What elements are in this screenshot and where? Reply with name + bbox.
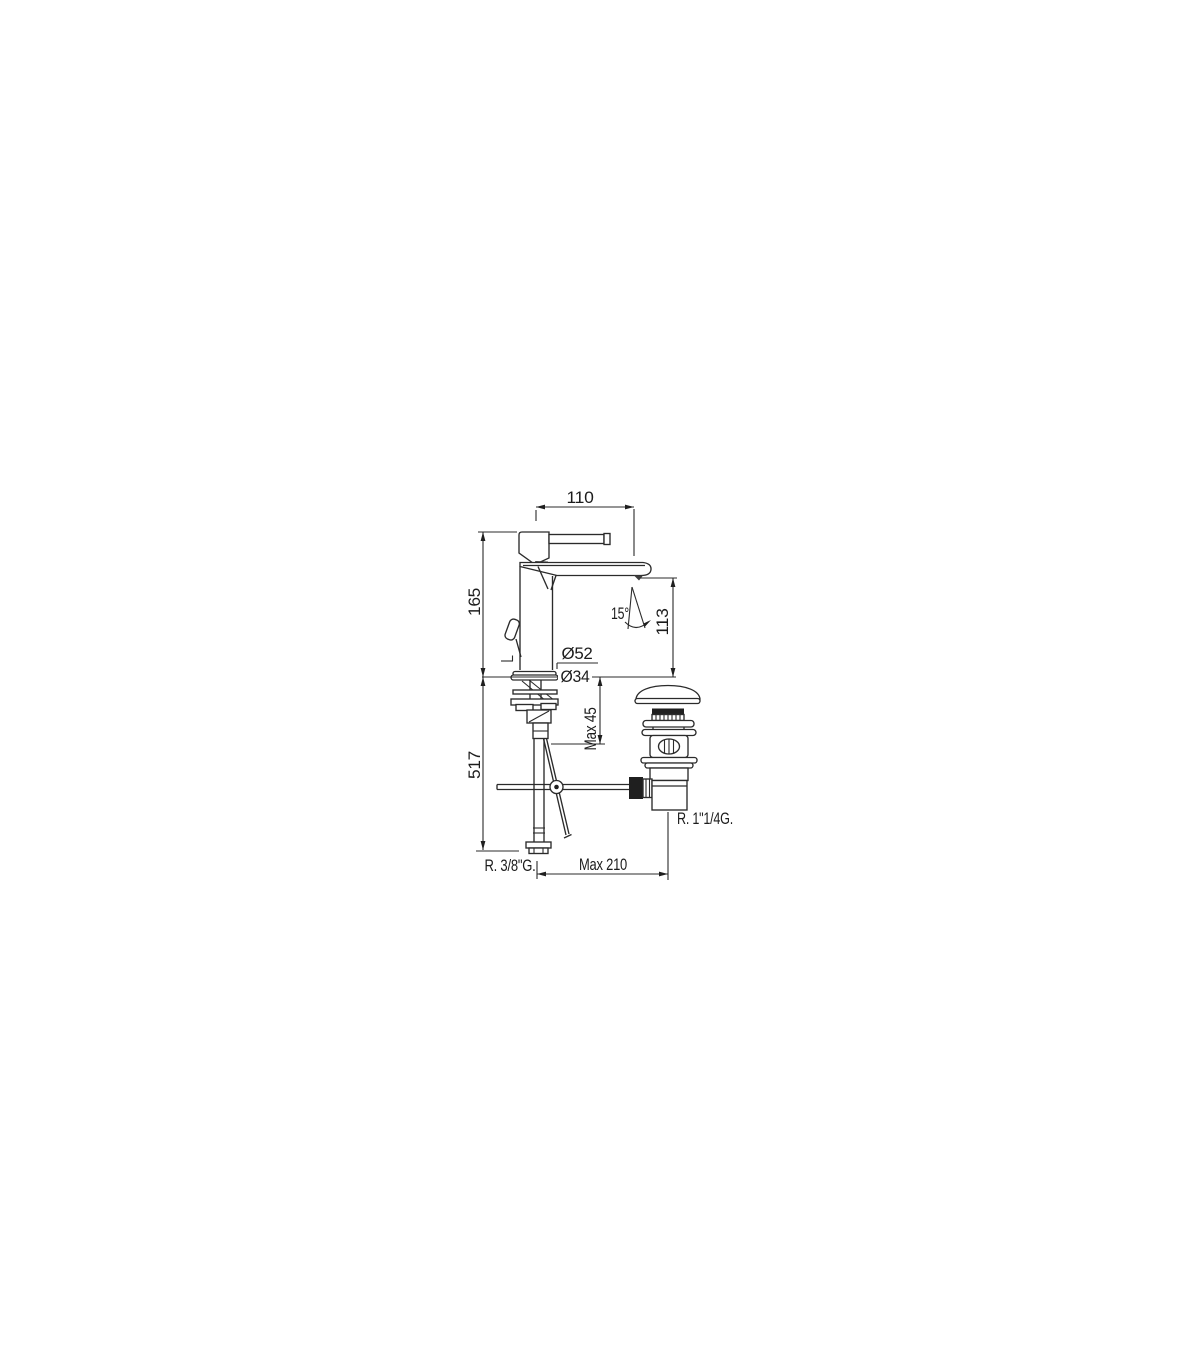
- waste-flange-top: [643, 721, 694, 728]
- dim-113-label: 113: [654, 608, 672, 635]
- dim-110-label: 110: [567, 489, 594, 507]
- waste-ribbed-neck: [652, 715, 684, 721]
- dim-165-label: 165: [466, 588, 484, 616]
- waste-flange-bottom: [641, 758, 697, 764]
- dimension-d34: Ø34: [558, 668, 592, 686]
- waste-inlet-nipple: [643, 779, 652, 798]
- faucet-base-collar: [511, 672, 558, 681]
- supply-hose-nut: [526, 842, 551, 848]
- faucet-body-cap: [519, 532, 549, 565]
- under-deck-mounting: [511, 680, 558, 739]
- product-drawing-page: 110 165 517 113 15° Ø52: [0, 0, 1200, 1372]
- faucet-handle-lever: [549, 534, 610, 545]
- dimension-110: 110: [536, 489, 634, 556]
- dimension-max45: Max 45: [551, 677, 605, 751]
- dim-d52-label: Ø52: [562, 645, 593, 663]
- faucet-column: [520, 567, 556, 671]
- dimension-113: 113: [640, 578, 677, 677]
- waste-tailpiece: [652, 781, 687, 811]
- supply-thread-label: R. 3/8"G.: [485, 857, 536, 875]
- popup-waste-assembly: [629, 686, 700, 811]
- dimension-165: 165: [466, 532, 517, 677]
- waste-dome-cap: [636, 686, 700, 700]
- dim-max210-label: Max 210: [579, 856, 627, 874]
- popup-linkage-rods: [497, 739, 630, 839]
- dim-d34-label: Ø34: [561, 668, 590, 686]
- dimension-d52: Ø52: [557, 645, 598, 669]
- popup-control-lever: [501, 618, 521, 661]
- waste-body: [650, 736, 688, 758]
- waste-flange-mid: [642, 730, 696, 736]
- dimension-max210: Max 210: [537, 812, 668, 880]
- waste-thread-label: R. 1"1/4G.: [677, 810, 733, 828]
- dim-517-label: 517: [466, 751, 484, 779]
- waste-side-inlet: [629, 777, 643, 799]
- waste-seal-band: [652, 709, 684, 715]
- dim-15deg-label: 15°: [611, 605, 629, 623]
- faucet-side-view: [497, 532, 651, 854]
- technical-drawing-canvas: 110 165 517 113 15° Ø52: [0, 0, 1200, 1372]
- dimension-angle-15: 15°: [611, 587, 651, 629]
- dim-max45-label: Max 45: [582, 707, 600, 750]
